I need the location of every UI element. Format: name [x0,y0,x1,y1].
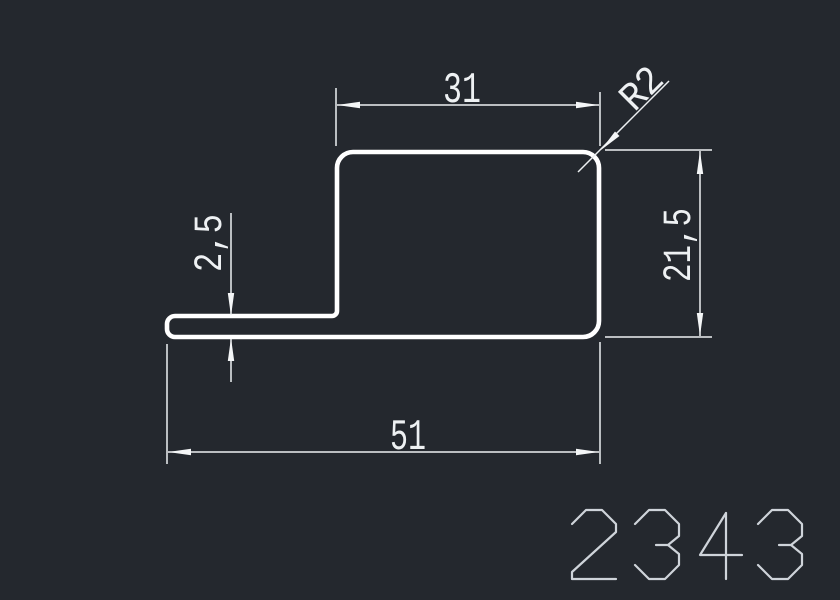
dim-top-width-arrow-left [337,102,360,108]
dim-right-height: 21,5 [605,150,712,337]
part-number-digit-3 [758,545,802,579]
dim-right-height-label: 21,5 [658,208,703,282]
dim-flange-thickness-arrow-down [228,293,234,316]
dim-top-width-label: 31 [443,66,481,116]
part-number-glyphs [572,510,802,579]
dim-overall-width-arrow-left [168,449,191,455]
dim-right-height-arrow-top [697,151,703,174]
part-number-digit-4 [700,513,742,555]
dim-right-height-arrow-bottom [697,313,703,336]
dim-corner-radius-arrow [601,132,620,151]
dim-flange-thickness: 2,5 [189,213,234,382]
dim-corner-radius-label: R2 [612,59,675,122]
dim-flange-thickness-label: 2,5 [189,214,234,272]
part-number-digit-3 [635,510,679,545]
dim-overall-width-label: 51 [390,413,426,463]
part-number-digit-3 [635,545,679,579]
dim-top-width: 31 [336,66,600,146]
dim-flange-thickness-arrow-up [228,338,234,361]
part-number-digit-2 [572,510,616,579]
part-number-digit-3 [758,510,802,545]
technical-drawing: 31 R2 21,5 2,5 [0,0,840,600]
dim-top-width-arrow-right [576,102,599,108]
cad-canvas: 31 R2 21,5 2,5 [0,0,840,600]
dim-overall-width-arrow-right [576,449,599,455]
